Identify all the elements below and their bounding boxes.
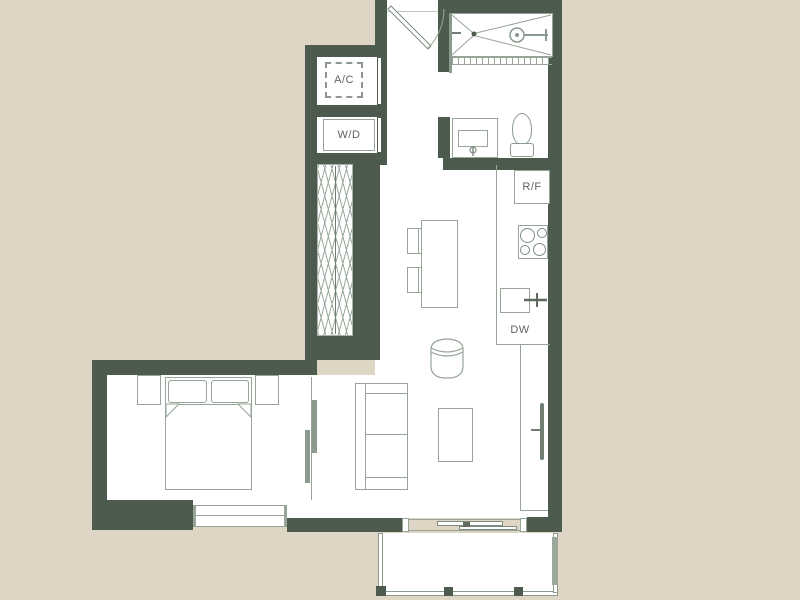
wall-ac-top: [305, 45, 387, 57]
shower-curb: [452, 57, 552, 65]
wd-closet-door: [378, 118, 381, 152]
wall-right: [548, 13, 562, 517]
wall-closet-room-divider: [353, 162, 380, 342]
wall-bottom-mid: [287, 518, 402, 532]
blanket-line: [166, 404, 251, 405]
balcony-door-track-top: [402, 519, 527, 520]
kitchen-island: [421, 220, 458, 308]
stool-bottom: [407, 267, 422, 293]
bedroom-slider-panel-1: [312, 400, 317, 453]
nightstand-right: [255, 375, 279, 405]
vanity-sink: [458, 130, 488, 147]
closet-rod: [335, 166, 336, 334]
stool-top-back: [418, 229, 419, 253]
floor-balcony: [378, 533, 558, 595]
sofa-cushion-line: [366, 434, 408, 435]
pillow-left: [168, 380, 207, 403]
wall-left-upper: [305, 45, 317, 360]
balcony-post-mid: [444, 587, 453, 596]
burner-top-left: [520, 228, 535, 243]
wall-bedroom-top: [92, 360, 317, 375]
kitchen-sink: [500, 288, 530, 313]
floorplan-canvas: A/C W/D R/F DW: [0, 0, 800, 600]
wall-bottom-right-chunk: [527, 517, 562, 532]
balcony-door-jamb-left: [402, 518, 409, 532]
kitchen-counter-return-end: [520, 510, 548, 511]
nightstand-left: [137, 375, 161, 405]
right-wall-door-leaf: [540, 403, 544, 460]
bedroom-window-cap-right: [284, 505, 287, 527]
burner-bottom-left: [520, 245, 530, 255]
toilet-tank-icon: [510, 143, 534, 157]
sofa-arm-bottom: [366, 477, 408, 478]
rf-label: R/F: [514, 170, 550, 204]
entry-threshold: [387, 11, 438, 12]
ac-label: A/C: [325, 62, 363, 98]
bedroom-slider-panel-2: [305, 430, 310, 483]
wall-ac-wd-divider: [305, 105, 380, 117]
wall-bottom-left: [92, 500, 193, 530]
wd-label: W/D: [323, 119, 375, 151]
stool-bottom-back: [418, 268, 419, 292]
dw-label: DW: [503, 321, 537, 339]
sofa-arm-top: [366, 393, 408, 394]
wall-closet-bottom: [305, 335, 380, 360]
right-wall-door-handle: [531, 429, 542, 431]
balcony-rail-left: [378, 533, 383, 593]
kitchen-counter-edge: [496, 165, 497, 345]
toilet-bowl-icon: [512, 113, 532, 145]
kitchen-counter-return: [520, 345, 521, 511]
stool-top: [407, 228, 422, 254]
balcony-door-handle: [463, 522, 470, 527]
coffee-table: [438, 408, 473, 462]
bedroom-window: [193, 505, 287, 527]
pillow-right: [211, 380, 249, 403]
balcony-post-left: [376, 586, 386, 596]
balcony-door-track-bottom: [402, 530, 527, 531]
shower-pan: [450, 13, 553, 57]
sofa-back-line: [365, 384, 366, 489]
kitchen-counter-end: [496, 344, 550, 345]
shower-door-handle: [452, 32, 461, 34]
balcony-post-right: [514, 587, 523, 596]
balcony-rail-bottom: [378, 591, 558, 596]
balcony-door-jamb-right: [520, 518, 527, 532]
wall-vanity-stub: [438, 117, 450, 158]
bedroom-window-glass: [194, 515, 286, 516]
ac-closet-door: [378, 58, 381, 104]
balcony-rail-right-segment: [552, 537, 558, 585]
wall-entry-left-stub: [375, 0, 387, 50]
bedroom-window-cap-left: [193, 505, 196, 527]
burner-top-right: [537, 228, 547, 238]
wall-top-right: [450, 0, 562, 13]
sofa: [355, 383, 408, 490]
burner-bottom-right: [533, 243, 546, 256]
